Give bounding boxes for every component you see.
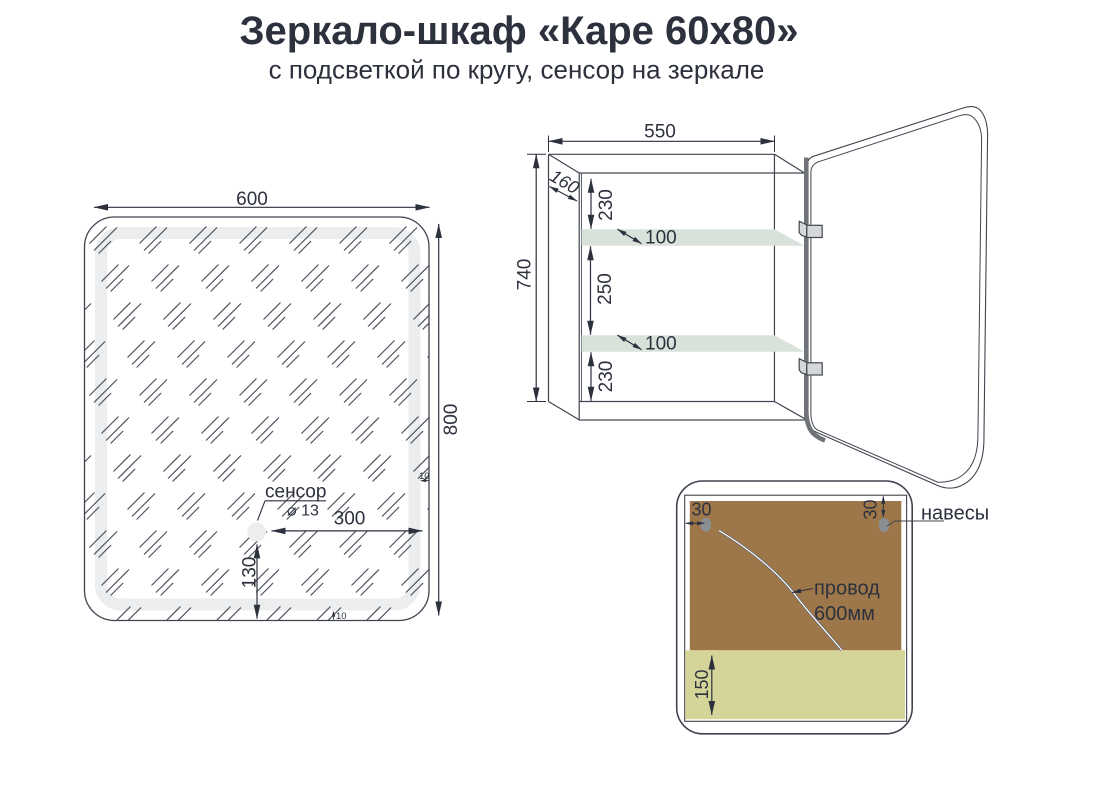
svg-text:250: 250 — [595, 273, 616, 305]
svg-text:сенсор: сенсор — [265, 482, 326, 503]
svg-text:с подсветкой по кругу, сенсор: с подсветкой по кругу, сенсор на зеркале — [269, 55, 765, 85]
svg-text:600: 600 — [236, 189, 268, 210]
svg-text:600мм: 600мм — [814, 603, 875, 625]
svg-text:800: 800 — [441, 404, 462, 436]
svg-text:10: 10 — [336, 611, 347, 622]
svg-text:провод: провод — [814, 578, 880, 600]
svg-text:100: 100 — [645, 334, 677, 355]
svg-text:30: 30 — [861, 499, 881, 519]
svg-text:150: 150 — [692, 669, 712, 699]
svg-text:230: 230 — [596, 361, 617, 393]
svg-text:550: 550 — [644, 122, 676, 143]
svg-text:100: 100 — [645, 228, 677, 249]
svg-text:⌀ 13: ⌀ 13 — [287, 503, 319, 520]
svg-text:130: 130 — [240, 557, 261, 589]
svg-text:160: 160 — [546, 166, 582, 198]
svg-text:230: 230 — [596, 189, 617, 221]
svg-text:300: 300 — [334, 509, 366, 530]
svg-text:30: 30 — [692, 500, 712, 520]
svg-text:740: 740 — [515, 259, 536, 291]
svg-text:Зеркало-шкаф «Каре 60х80»: Зеркало-шкаф «Каре 60х80» — [239, 9, 798, 53]
